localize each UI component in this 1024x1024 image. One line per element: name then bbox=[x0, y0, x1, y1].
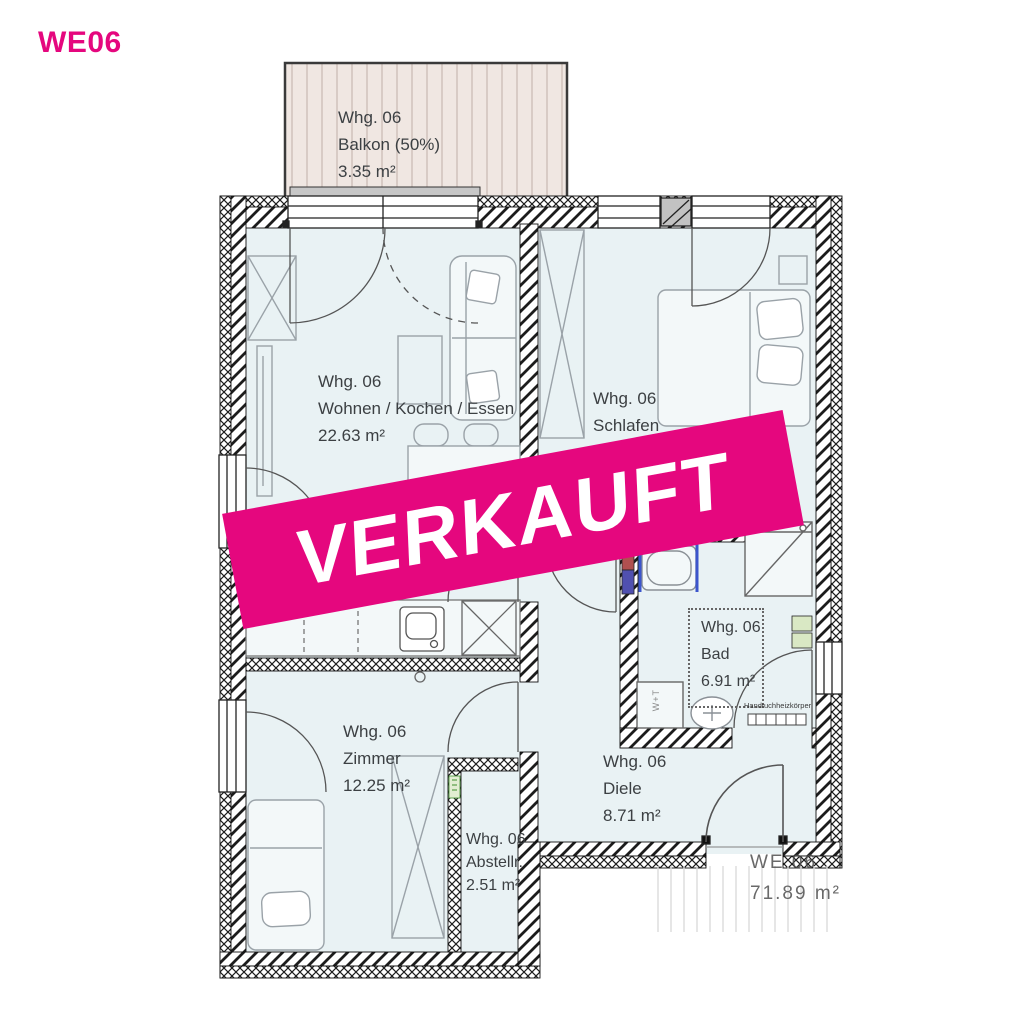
room-type-line: Diele bbox=[603, 775, 666, 802]
room-unit-line: Whg. 06 bbox=[318, 368, 514, 395]
unit-area-label: WE 06 71.89 m² bbox=[750, 847, 841, 909]
room-unit-line: Whg. 06 bbox=[603, 748, 666, 775]
unit-summary-area: 71.89 m² bbox=[750, 878, 841, 909]
bedroom-balcony-door bbox=[692, 196, 770, 228]
room-label-zimmer: Whg. 06 Zimmer 12.25 m² bbox=[343, 718, 410, 799]
wall-annotation-green bbox=[449, 776, 460, 798]
room-area-line: 6.91 m² bbox=[701, 668, 762, 695]
room-area-line: 2.51 m² bbox=[466, 874, 526, 897]
room-unit-line: Whg. 06 bbox=[338, 104, 440, 131]
shaft-box bbox=[661, 198, 691, 226]
room-type-line: Bad bbox=[701, 641, 762, 668]
double-bed bbox=[658, 290, 810, 426]
room-label-wohnen: Whg. 06 Wohnen / Kochen / Essen 22.63 m² bbox=[318, 368, 514, 449]
balcony-door-window bbox=[288, 196, 478, 228]
bath-cabinet bbox=[792, 633, 812, 648]
towel-radiator-label: Handtuchheizkörper bbox=[744, 701, 811, 710]
room-area-line: 12.25 m² bbox=[343, 772, 410, 799]
single-bed bbox=[248, 800, 324, 950]
room-unit-line: Whg. 06 bbox=[701, 614, 762, 641]
washer-dryer-label: W+T bbox=[651, 689, 661, 711]
kitchen-sink bbox=[400, 607, 444, 651]
room-area-line: 8.71 m² bbox=[603, 802, 666, 829]
room-label-schlafen: Whg. 06 Schlafen bbox=[593, 385, 659, 439]
bath-window bbox=[816, 642, 842, 694]
room-label-bad: Whg. 06 Bad 6.91 m² bbox=[688, 608, 764, 708]
towel-radiator bbox=[748, 714, 806, 725]
jamb-mark bbox=[283, 221, 289, 227]
kidsroom-window bbox=[219, 700, 246, 792]
room-type-line: Balkon (50%) bbox=[338, 131, 440, 158]
unit-code-label: WE06 bbox=[38, 26, 122, 60]
room-type-line: Wohnen / Kochen / Essen bbox=[318, 395, 514, 422]
bath-cabinet bbox=[792, 616, 812, 631]
room-area-line: 22.63 m² bbox=[318, 422, 514, 449]
section-marker-blue bbox=[622, 570, 634, 594]
room-unit-line: Whg. 06 bbox=[593, 385, 659, 412]
room-type-line: Abstellr. bbox=[466, 851, 526, 874]
room-unit-line: Whg. 06 bbox=[466, 828, 526, 851]
room-area-line: 3.35 m² bbox=[338, 158, 440, 185]
bedroom-window bbox=[598, 196, 660, 228]
room-label-diele: Whg. 06 Diele 8.71 m² bbox=[603, 748, 666, 829]
room-type-line: Zimmer bbox=[343, 745, 410, 772]
room-label-abstellraum: Whg. 06 Abstellr. 2.51 m² bbox=[466, 828, 526, 897]
room-label-balkon: Whg. 06 Balkon (50%) 3.35 m² bbox=[338, 104, 440, 185]
unit-summary-code: WE 06 bbox=[750, 847, 841, 878]
room-unit-line: Whg. 06 bbox=[343, 718, 410, 745]
jamb-mark bbox=[476, 221, 482, 227]
floorplan-canvas: WE06 bbox=[0, 0, 1024, 1024]
